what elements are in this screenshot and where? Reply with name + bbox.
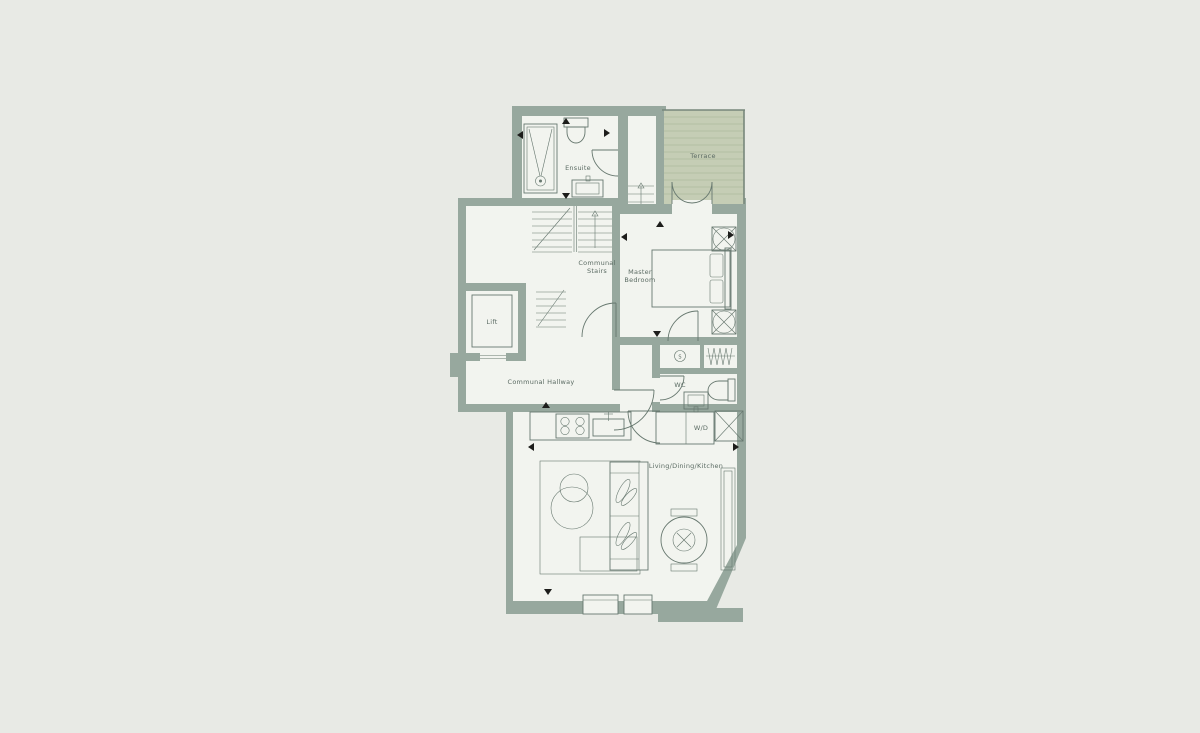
room-label-communal-stairs-1: Communal: [578, 259, 615, 267]
bedroom-bottom-wall-right: [698, 337, 746, 345]
lift-bottom-wall-left: [458, 353, 480, 361]
room-label-ensuite: Ensuite: [565, 164, 591, 172]
room-label-lift: Lift: [486, 318, 497, 326]
appliance-label-wd: W/D: [694, 424, 708, 432]
cupboard-divider-wall: [700, 345, 704, 368]
bottom-wall-step: [658, 608, 743, 622]
lift-top-wall: [458, 283, 526, 291]
ensuite-floor: [522, 116, 618, 198]
room-label-living-dining-kitchen: Living/Dining/Kitchen: [649, 462, 723, 470]
floor-plan-canvas: Terrace: [0, 0, 1200, 733]
communal-core-floor: [466, 206, 612, 404]
terrace-area: Terrace: [662, 110, 745, 204]
sofa-icon: [610, 462, 648, 570]
lift-bottom-wall-right: [506, 353, 526, 361]
hallway-bottom-wall: [458, 404, 620, 412]
lift-right-wall: [518, 283, 526, 361]
bedroom-bottom-wall-left: [612, 337, 668, 345]
room-label-terrace: Terrace: [689, 152, 715, 160]
terrace-doorway-gap: [672, 200, 712, 214]
floor-plan-drawing: Terrace: [0, 0, 1200, 733]
room-label-master-bedroom-1: Master: [628, 268, 652, 276]
room-label-communal-hallway: Communal Hallway: [508, 378, 575, 386]
storage-cupboard-label: S: [678, 355, 681, 361]
window: [624, 595, 652, 614]
stair-bedroom-wall-upper: [612, 206, 620, 303]
room-label-wc: WC: [674, 381, 686, 389]
bedroom-top-wall-right: [712, 204, 746, 214]
entry-doorway-gap: [612, 390, 620, 404]
window: [583, 595, 618, 614]
wc-floor: [660, 374, 737, 404]
inner-hall-floor: [620, 345, 656, 412]
bedroom-top-wall-left: [620, 204, 672, 214]
room-label-communal-stairs-2: Stairs: [587, 267, 607, 275]
ensuite-right-wall: [618, 116, 628, 206]
stair-bedroom-wall-lower: [612, 345, 620, 390]
stair-landing-floor: [628, 116, 656, 206]
cupboard-bottom-wall: [652, 368, 737, 374]
bed-icon: [652, 248, 731, 309]
room-label-master-bedroom-2: Bedroom: [624, 276, 655, 284]
